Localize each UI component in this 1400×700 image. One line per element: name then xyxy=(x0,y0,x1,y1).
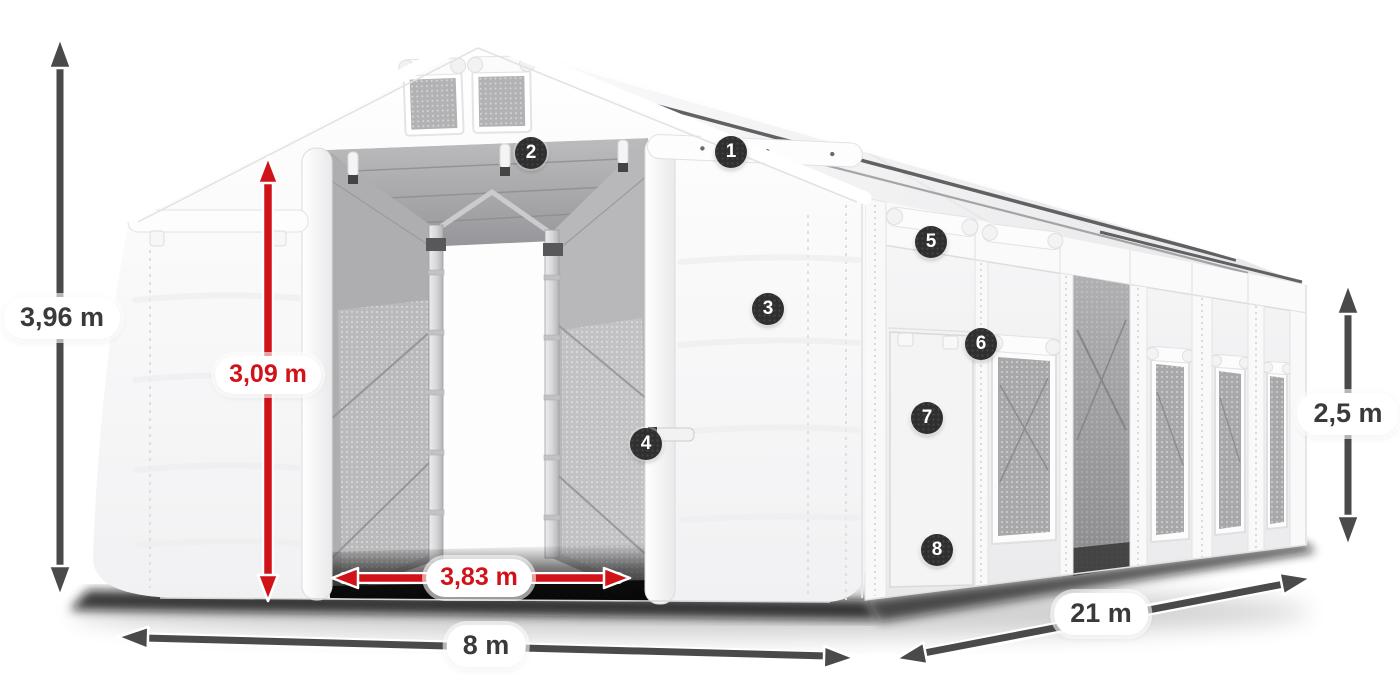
callout-1[interactable]: 1 xyxy=(715,136,747,168)
dimension-label-side-length: 21 m xyxy=(1054,593,1148,635)
callout-7[interactable]: 7 xyxy=(911,402,943,434)
callout-4[interactable]: 4 xyxy=(630,428,662,460)
callout-5[interactable]: 5 xyxy=(915,226,947,258)
dimension-label-door-width: 3,83 m xyxy=(426,559,532,597)
callout-6[interactable]: 6 xyxy=(965,328,997,360)
interior-pole xyxy=(426,225,446,562)
dimension-label-front-width: 8 m xyxy=(447,625,526,667)
side-window-1 xyxy=(987,334,1062,544)
side-window-2 xyxy=(1146,346,1195,542)
callout-2[interactable]: 2 xyxy=(515,137,547,169)
side-window-3 xyxy=(1210,354,1251,535)
dimension-label-door-height: 3,09 m xyxy=(215,356,321,394)
callout-3[interactable]: 3 xyxy=(752,293,784,325)
side-open-section xyxy=(1073,275,1130,576)
door-edge-roll xyxy=(645,136,675,604)
callout-8[interactable]: 8 xyxy=(921,534,953,566)
tent-illustration xyxy=(0,0,1400,700)
dimension-label-total-height: 3,96 m xyxy=(4,297,120,339)
tent-product-visualization: 3,96 m 3,09 m 3,83 m 8 m 21 m 2,5 m 1 2 … xyxy=(0,0,1400,700)
doorway-interior xyxy=(320,130,660,610)
dimension-label-side-height: 2,5 m xyxy=(1297,393,1398,435)
